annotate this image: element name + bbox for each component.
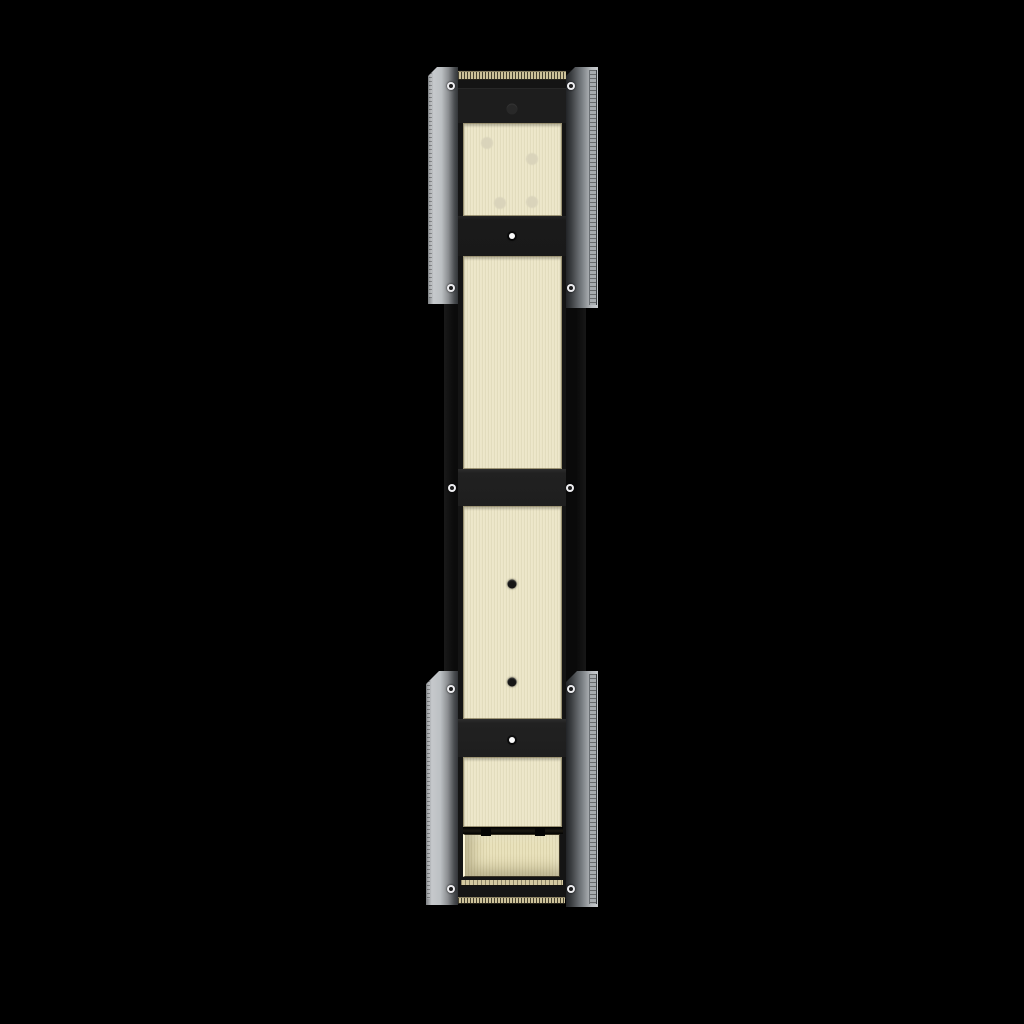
cream-panel-2: [463, 256, 562, 469]
faint-dot: [526, 196, 538, 208]
tray-slot-opening: [463, 827, 563, 834]
cream-panel-4: [463, 757, 562, 827]
lower-left-steel-plate: [426, 671, 458, 905]
plate-rivet: [567, 685, 575, 693]
lower-right-steel-plate: [566, 671, 598, 907]
plate-rivet: [567, 885, 575, 893]
plate-rivet: [447, 685, 455, 693]
black-dot: [508, 678, 517, 687]
top-brush-seal-strip: [458, 71, 566, 80]
rail-rivet: [448, 484, 456, 492]
upper-right-steel-plate: [566, 67, 598, 308]
bottom-tan-strip: [461, 880, 563, 886]
faint-dot: [526, 153, 538, 165]
black-dot: [508, 580, 517, 589]
upper-left-steel-plate: [428, 67, 458, 304]
plate-rivet: [447, 284, 455, 292]
plate-rivet: [567, 284, 575, 292]
white-dot: [509, 737, 515, 743]
plate-rivet: [447, 885, 455, 893]
slot-tab-left: [481, 828, 491, 836]
rail-rivet: [566, 484, 574, 492]
faint-dot: [481, 137, 493, 149]
recessed-tray: [463, 834, 560, 877]
cream-panel-1: [463, 123, 562, 216]
middle-crossbar: [458, 469, 566, 506]
dim-dot: [507, 104, 518, 115]
plate-rivet: [447, 82, 455, 90]
white-dot: [509, 233, 515, 239]
bottom-brush-seal-strip: [458, 897, 565, 904]
render-scene: [0, 0, 1024, 1024]
slot-tab-right: [535, 828, 545, 836]
faint-dot: [494, 197, 506, 209]
plate-rivet: [567, 82, 575, 90]
cream-panel-3: [463, 506, 562, 719]
